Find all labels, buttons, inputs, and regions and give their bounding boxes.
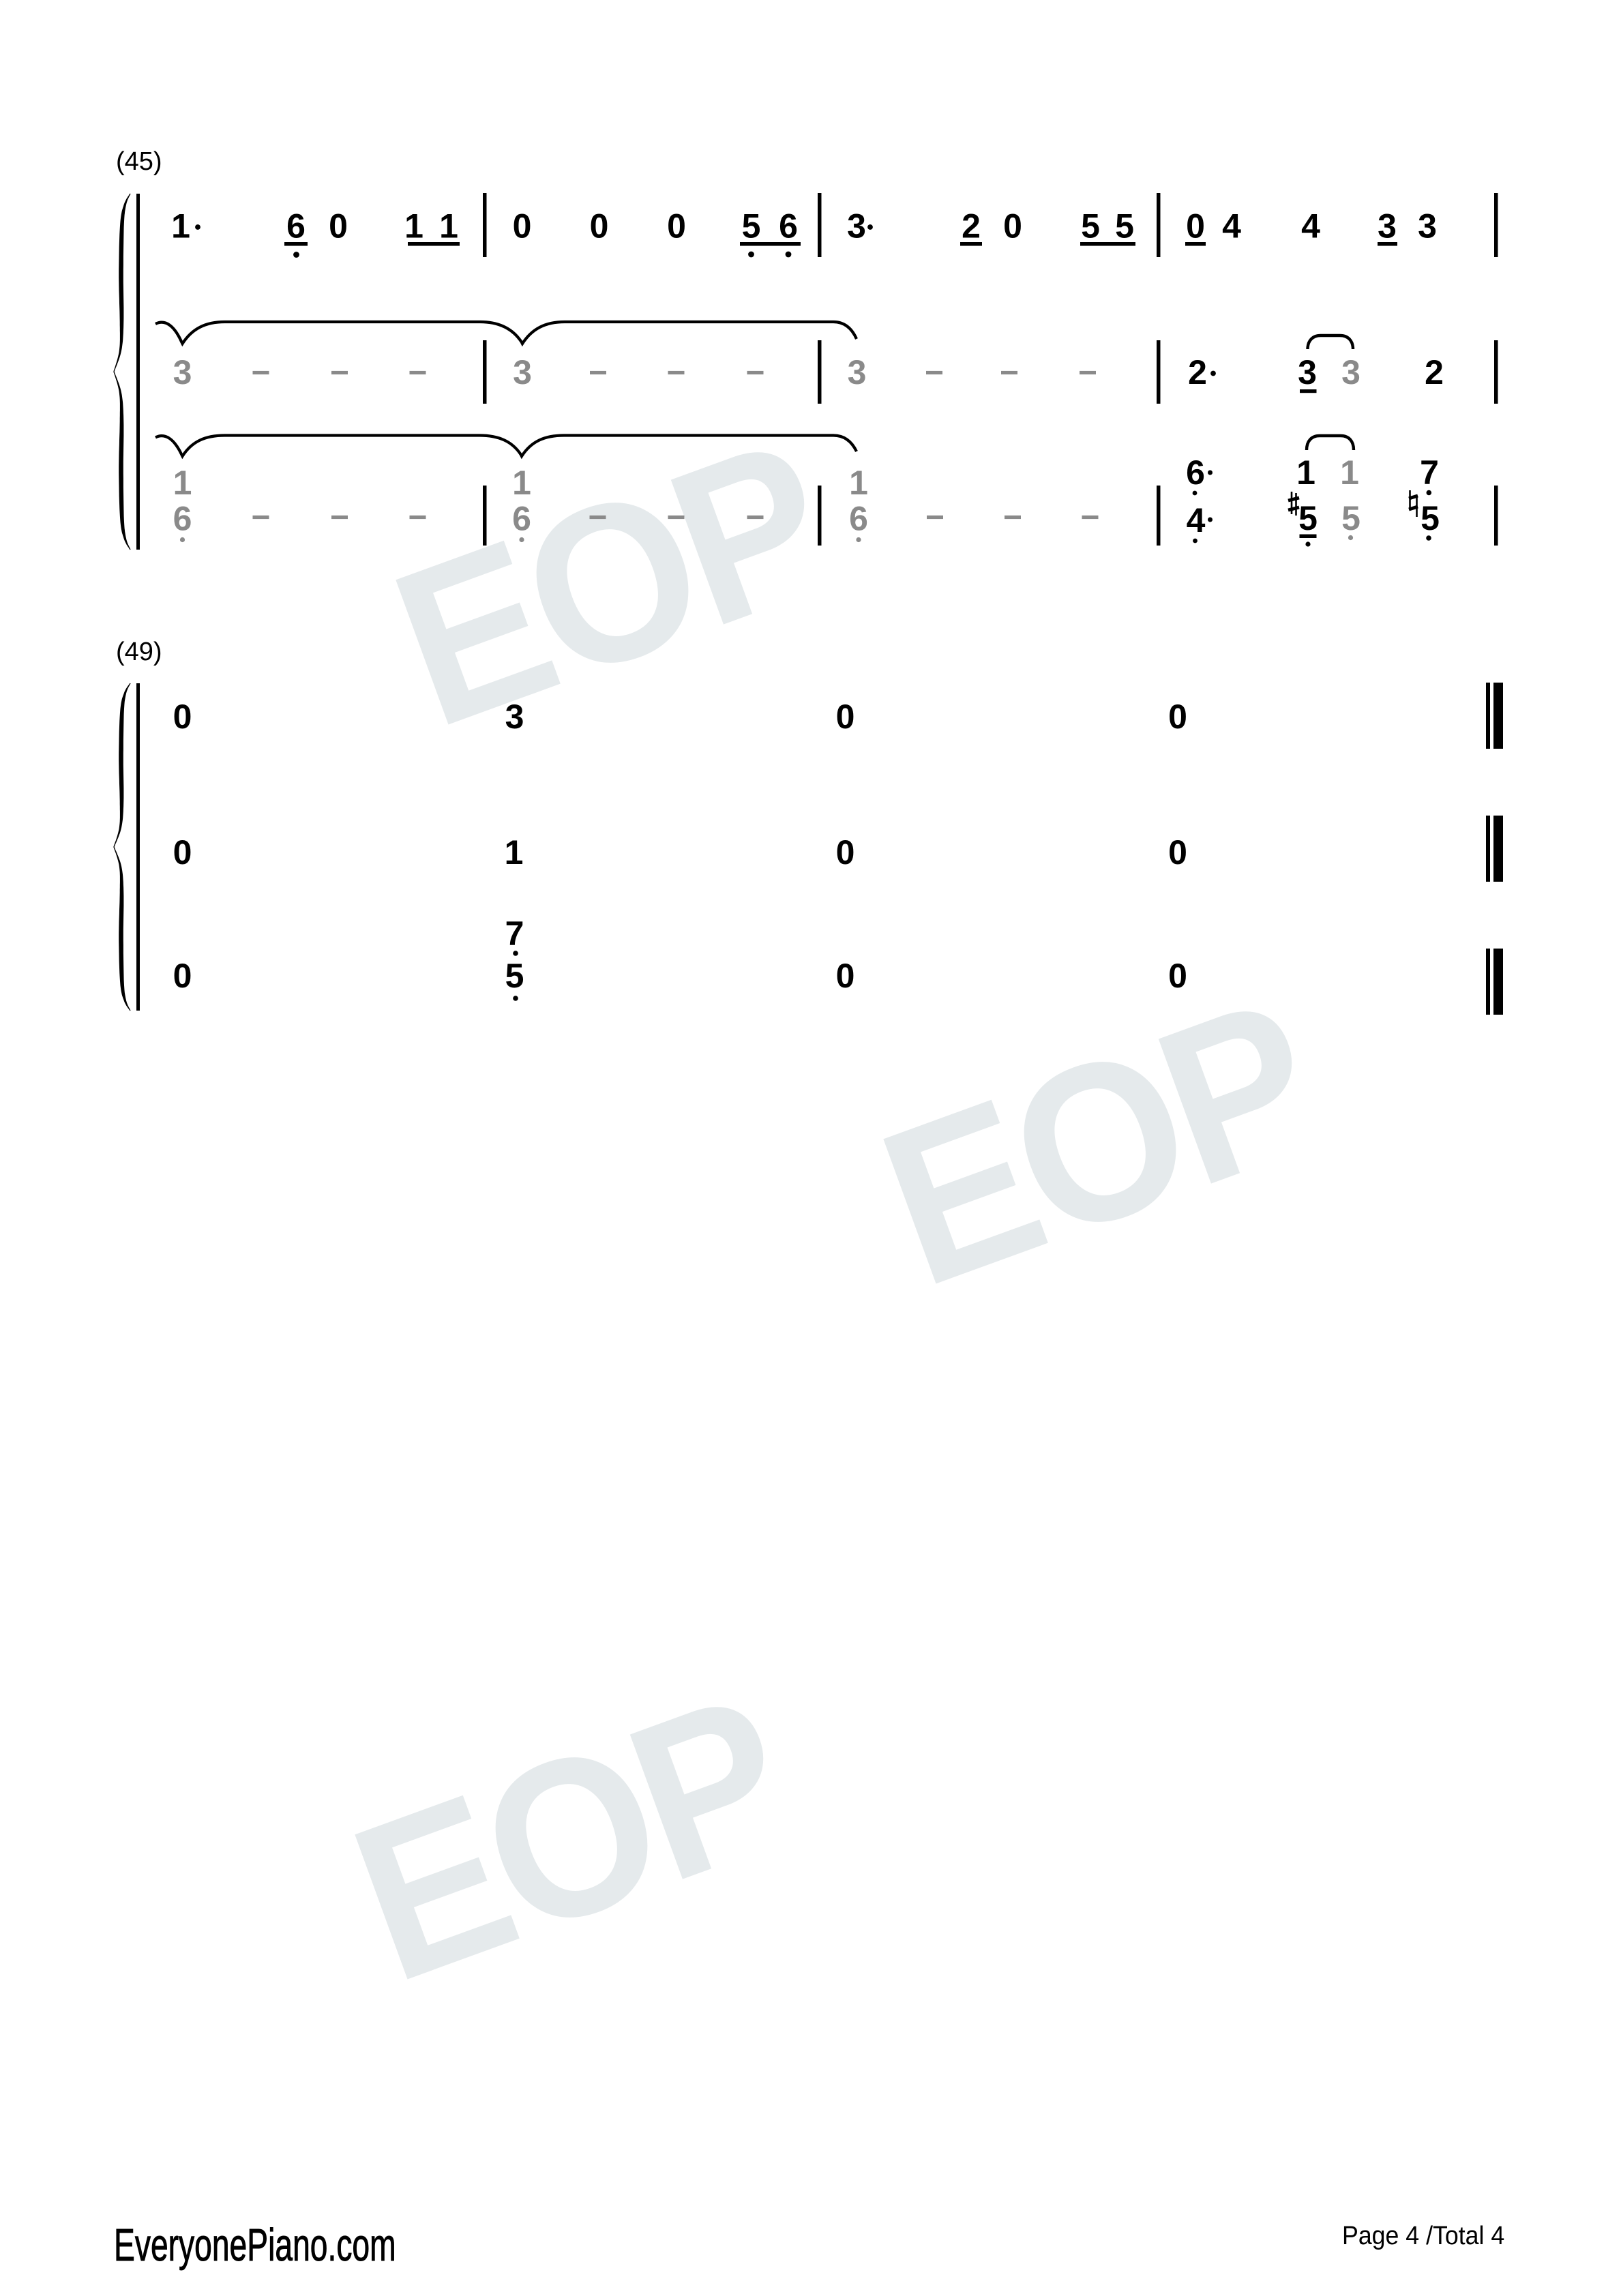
svg-text:7: 7 — [505, 914, 524, 953]
svg-text:6: 6 — [849, 500, 868, 538]
svg-text:4: 4 — [1222, 207, 1241, 245]
svg-text:5: 5 — [505, 957, 524, 995]
svg-text:6: 6 — [1186, 453, 1205, 492]
svg-text:4: 4 — [1187, 501, 1206, 539]
svg-text:0: 0 — [1168, 957, 1187, 995]
svg-text:6: 6 — [779, 207, 798, 245]
svg-text:0: 0 — [329, 207, 348, 245]
svg-text:5: 5 — [1341, 499, 1360, 537]
svg-text:0: 0 — [1186, 207, 1205, 245]
svg-text:(49): (49) — [116, 638, 162, 666]
svg-text:5: 5 — [1115, 207, 1134, 245]
svg-text:1: 1 — [173, 464, 192, 502]
svg-text:0: 0 — [667, 207, 686, 245]
svg-text:2: 2 — [1188, 353, 1207, 391]
svg-text:5: 5 — [742, 207, 761, 245]
svg-text:7: 7 — [1420, 453, 1439, 492]
svg-text:1: 1 — [849, 464, 868, 502]
svg-text:0: 0 — [173, 957, 192, 995]
svg-text:0: 0 — [836, 833, 855, 871]
svg-text:3: 3 — [1341, 353, 1360, 391]
svg-text:0: 0 — [173, 698, 192, 736]
svg-text:1: 1 — [512, 464, 531, 502]
svg-text:5: 5 — [1298, 499, 1318, 537]
svg-text:3: 3 — [848, 353, 867, 391]
svg-text:0: 0 — [1168, 698, 1187, 736]
svg-text:0: 0 — [513, 207, 532, 245]
svg-text:2: 2 — [1425, 353, 1444, 391]
svg-text:3: 3 — [513, 353, 532, 391]
svg-text:0: 0 — [1168, 833, 1187, 871]
svg-text:1: 1 — [1296, 453, 1315, 492]
svg-text:6: 6 — [512, 500, 531, 538]
svg-text:3: 3 — [847, 207, 866, 245]
svg-text:0: 0 — [173, 833, 192, 871]
svg-text:1: 1 — [404, 207, 423, 245]
svg-text:1: 1 — [171, 207, 190, 245]
svg-text:5: 5 — [1421, 499, 1440, 537]
svg-text:2: 2 — [962, 207, 981, 245]
svg-text:6: 6 — [173, 500, 192, 538]
svg-text:1: 1 — [439, 207, 458, 245]
svg-text:0: 0 — [1003, 207, 1022, 245]
svg-text:3: 3 — [1378, 207, 1397, 245]
svg-text:6: 6 — [286, 207, 306, 245]
svg-text:3: 3 — [1298, 353, 1317, 391]
svg-text:Page 4 /Total 4: Page 4 /Total 4 — [1342, 2221, 1504, 2250]
svg-text:3: 3 — [505, 698, 524, 736]
svg-text:3: 3 — [173, 353, 192, 391]
svg-text:1: 1 — [505, 833, 524, 871]
svg-text:1: 1 — [1340, 453, 1359, 492]
svg-text:0: 0 — [590, 207, 609, 245]
svg-text:4: 4 — [1301, 207, 1320, 245]
svg-text:0: 0 — [836, 957, 855, 995]
svg-text:EveryonePiano.com: EveryonePiano.com — [114, 2220, 396, 2271]
svg-text:0: 0 — [836, 698, 855, 736]
svg-text:(45): (45) — [116, 147, 162, 176]
svg-text:5: 5 — [1081, 207, 1100, 245]
svg-text:3: 3 — [1418, 207, 1437, 245]
